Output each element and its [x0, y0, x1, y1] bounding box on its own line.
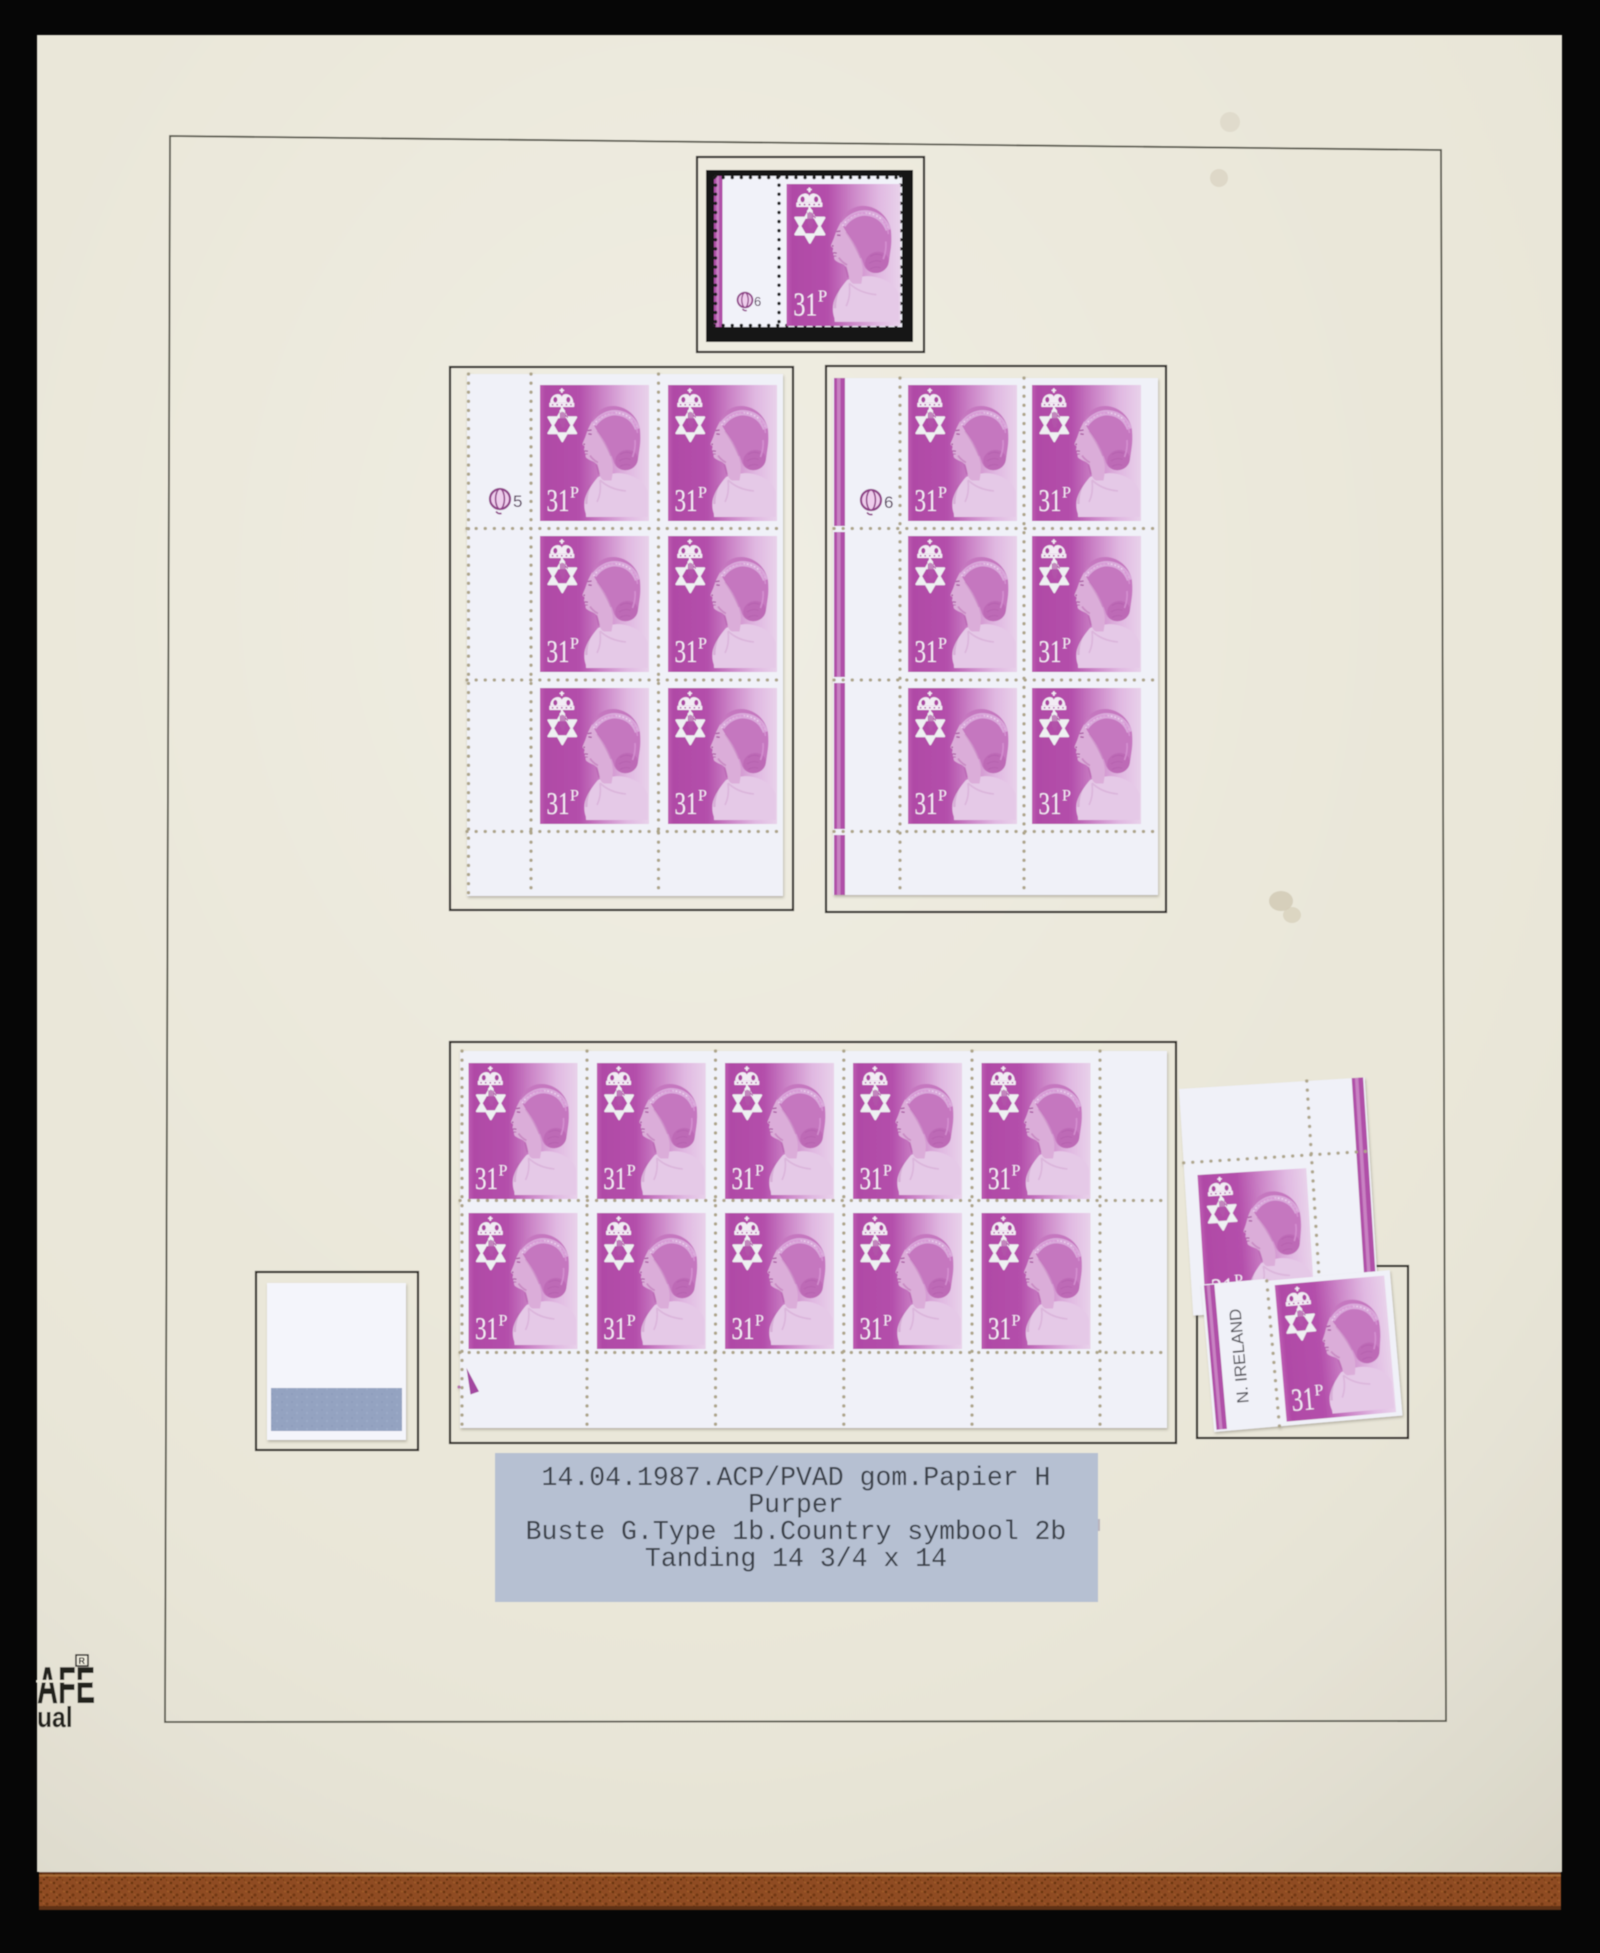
- svg-text:Purper: Purper: [748, 1490, 843, 1520]
- svg-text:5: 5: [513, 492, 522, 511]
- svg-text:14.04.1987.ACP/PVAD gom.Papier: 14.04.1987.ACP/PVAD gom.Papier H: [542, 1463, 1051, 1493]
- svg-text:6: 6: [884, 493, 893, 512]
- svg-text:Tanding 14 3/4 x 14: Tanding 14 3/4 x 14: [645, 1544, 947, 1574]
- svg-text:Buste G.Type 1b.Country symboo: Buste G.Type 1b.Country symbool 2b: [526, 1517, 1067, 1547]
- svg-text:ual: ual: [37, 1701, 73, 1733]
- svg-text:6: 6: [754, 294, 761, 309]
- svg-text:R: R: [79, 1656, 86, 1666]
